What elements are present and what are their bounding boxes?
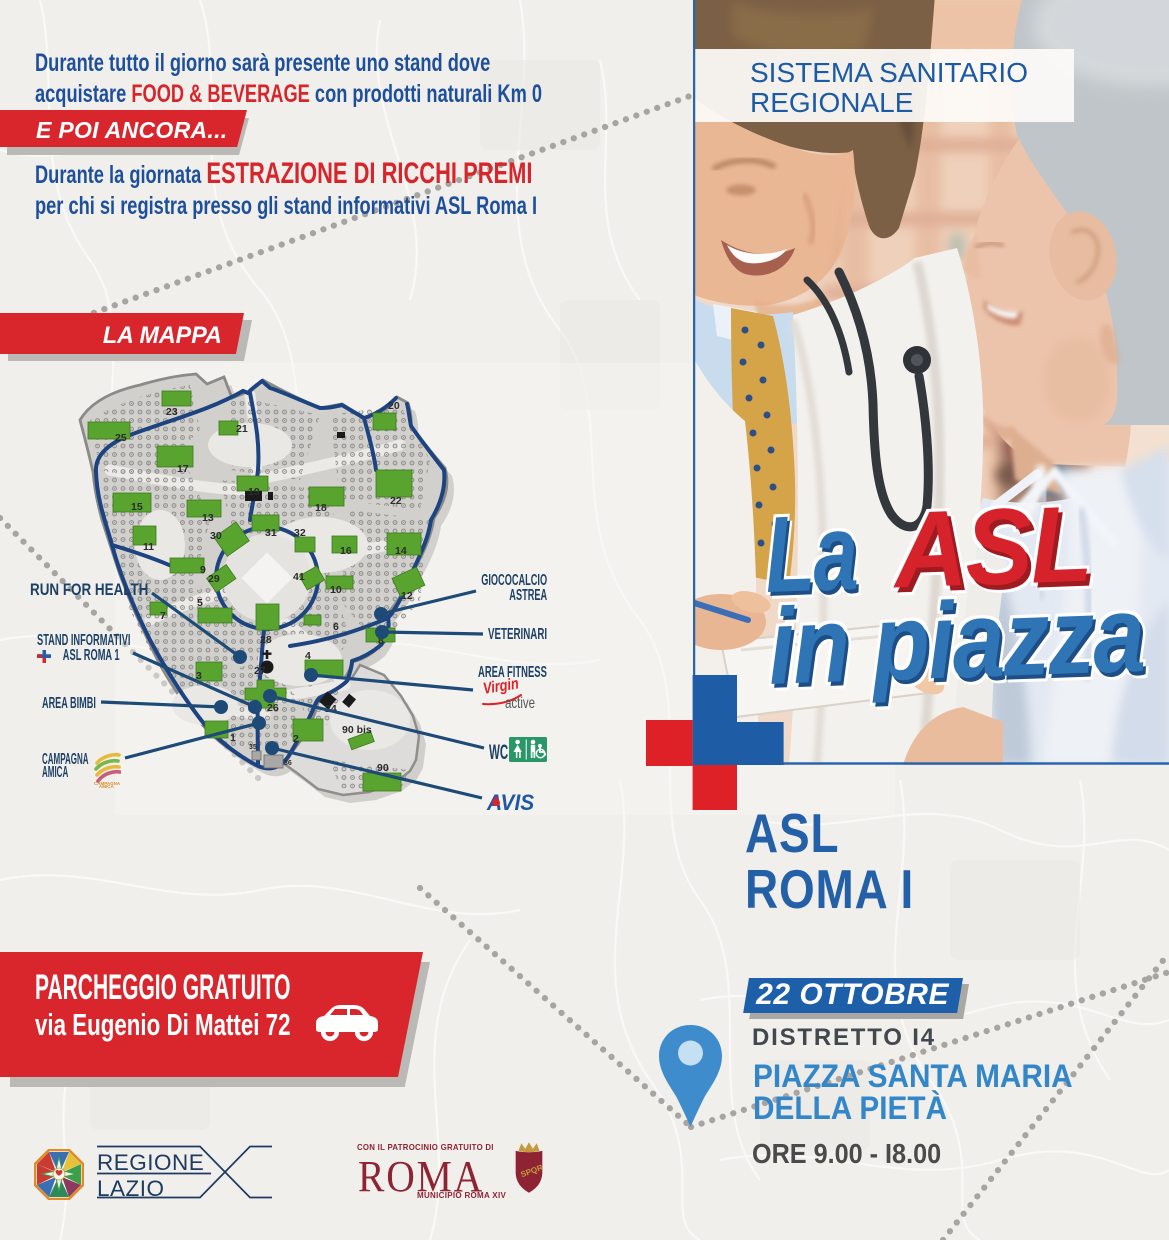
svg-text:31: 31	[265, 527, 277, 539]
svg-text:25: 25	[115, 432, 127, 444]
svg-text:23: 23	[166, 406, 178, 418]
svg-text:32: 32	[294, 527, 306, 539]
svg-text:12: 12	[401, 590, 413, 602]
svg-text:16: 16	[340, 545, 352, 557]
svg-text:10: 10	[330, 584, 342, 596]
svg-text:6: 6	[333, 621, 339, 633]
svg-text:36: 36	[284, 760, 292, 767]
svg-text:9: 9	[200, 564, 206, 576]
svg-text:20: 20	[388, 400, 400, 412]
svg-text:2: 2	[293, 733, 299, 745]
svg-text:27: 27	[254, 665, 266, 677]
svg-text:15: 15	[131, 501, 143, 513]
svg-text:41: 41	[293, 571, 305, 583]
svg-text:18: 18	[315, 502, 327, 514]
svg-text:14: 14	[395, 545, 407, 557]
svg-text:5: 5	[197, 597, 203, 609]
svg-text:1: 1	[230, 732, 236, 744]
svg-text:30: 30	[210, 530, 222, 542]
svg-text:17: 17	[177, 463, 189, 475]
svg-text:35: 35	[249, 744, 257, 751]
svg-text:11: 11	[143, 541, 154, 553]
svg-text:90 bis: 90 bis	[342, 724, 372, 736]
svg-text:22: 22	[390, 495, 402, 507]
svg-text:13: 13	[202, 512, 214, 524]
svg-text:29: 29	[208, 573, 220, 585]
svg-text:4: 4	[305, 650, 311, 662]
svg-text:21: 21	[236, 423, 248, 435]
svg-text:28: 28	[260, 634, 272, 646]
svg-text:7: 7	[160, 610, 166, 622]
svg-text:26: 26	[267, 702, 279, 714]
svg-text:AMICA: AMICA	[99, 784, 114, 788]
svg-text:19: 19	[248, 486, 260, 498]
